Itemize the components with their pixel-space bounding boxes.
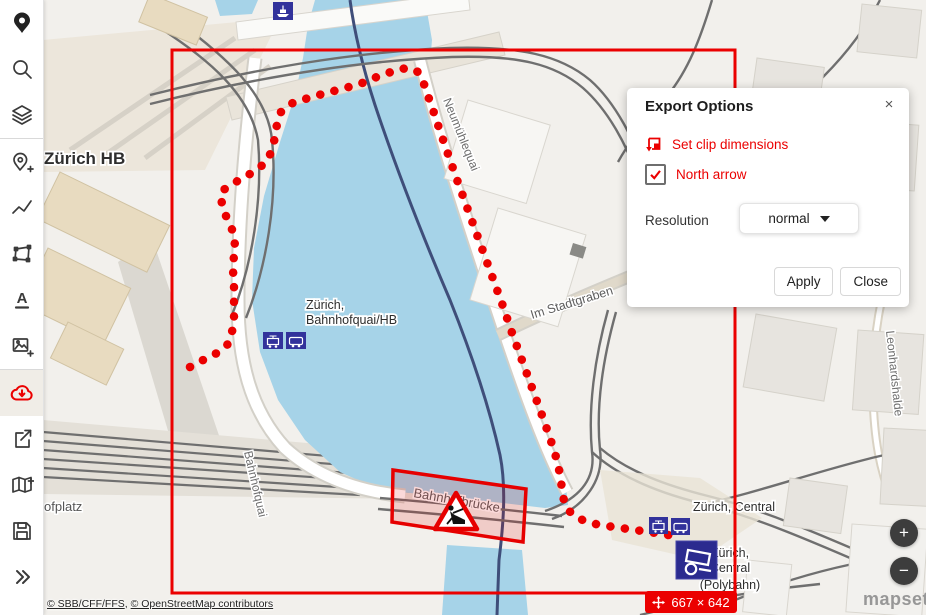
north-arrow-row: North arrow: [645, 162, 747, 186]
mapset-logo[interactable]: [0, 0, 43, 46]
label-zuerich-hb: Zürich HB: [44, 149, 125, 168]
share-icon: [10, 427, 34, 451]
osm-attribution-link[interactable]: © OpenStreetMap contributors: [131, 598, 274, 610]
mapset-pin-icon: [10, 11, 34, 35]
cloud-download-icon: [9, 380, 35, 406]
add-location-icon: [10, 150, 34, 174]
layers-button[interactable]: [0, 92, 43, 138]
attribution: © SBB/CFF/FFS, © OpenStreetMap contribut…: [47, 598, 273, 610]
draw-polygon-button[interactable]: [0, 231, 43, 277]
boat-stop-icon: [273, 2, 293, 20]
label-bahnhofquai-hb-2: Bahnhofquai/HB: [306, 313, 397, 327]
set-clip-dimensions-label: Set clip dimensions: [672, 137, 788, 152]
search-icon: [10, 57, 34, 81]
save-icon: [10, 519, 34, 543]
add-image-icon: [10, 334, 34, 358]
export-options-panel: Export Options × Set clip dimensions Nor…: [627, 88, 909, 307]
label-polybahn-3: (Polybahn): [700, 578, 760, 592]
toolbar-sidebar: A: [0, 0, 44, 615]
clip-dimensions-icon: [645, 136, 662, 153]
add-text-button[interactable]: A: [0, 277, 43, 323]
tram-stop-icon-bahnhofquai: [263, 332, 283, 349]
north-arrow-checkbox[interactable]: [645, 164, 666, 185]
double-chevron-right-icon: [10, 565, 34, 589]
zoom-in-button[interactable]: +: [890, 519, 918, 547]
app-window: Neumühlequai Im Stadtgraben Leonhardshal…: [0, 0, 926, 615]
water-top-left: [215, 0, 258, 16]
mapset-watermark: mapset: [863, 589, 926, 610]
north-arrow-label: North arrow: [676, 167, 747, 182]
label-bahnhofquai-hb-1: Zürich,: [306, 298, 344, 312]
layers-icon: [10, 103, 34, 127]
clip-size-badge[interactable]: 667 × 642: [645, 591, 737, 613]
resolution-dropdown[interactable]: normal: [739, 203, 859, 234]
add-map-button[interactable]: [0, 462, 43, 508]
add-map-icon: [10, 473, 34, 497]
bus-stop-icon-central: [671, 518, 690, 535]
apply-button[interactable]: Apply: [774, 267, 834, 296]
panel-title: Export Options: [645, 98, 753, 115]
close-button[interactable]: Close: [840, 267, 901, 296]
polybahn-stop-icon: [676, 541, 717, 579]
save-button[interactable]: [0, 508, 43, 554]
set-clip-dimensions-row[interactable]: Set clip dimensions: [645, 132, 788, 156]
label-bahnhofplatz: ofplatz: [44, 499, 82, 514]
share-button[interactable]: [0, 416, 43, 462]
draw-line-button[interactable]: [0, 185, 43, 231]
draw-polygon-icon: [10, 242, 34, 266]
add-image-button[interactable]: [0, 323, 43, 369]
bus-stop-icon-bahnhofquai: [286, 332, 306, 349]
search-button[interactable]: [0, 46, 43, 92]
close-icon[interactable]: ×: [879, 94, 899, 114]
add-text-icon: A: [10, 288, 34, 312]
water-south: [442, 545, 528, 615]
move-icon: [652, 596, 665, 609]
chevron-down-icon: [820, 216, 830, 222]
expand-more-button[interactable]: [0, 554, 43, 600]
zoom-out-button[interactable]: −: [890, 557, 918, 585]
add-location-button[interactable]: [0, 139, 43, 185]
resolution-value: normal: [768, 211, 809, 226]
clip-size-value: 667 × 642: [671, 595, 729, 610]
tram-stop-icon-central: [649, 517, 668, 534]
resolution-label: Resolution: [645, 206, 709, 235]
export-download-button[interactable]: [0, 370, 43, 416]
sbb-attribution-link[interactable]: © SBB/CFF/FFS: [47, 598, 125, 610]
svg-text:A: A: [16, 290, 27, 307]
checkmark-icon: [649, 168, 662, 181]
draw-line-icon: [10, 196, 34, 220]
